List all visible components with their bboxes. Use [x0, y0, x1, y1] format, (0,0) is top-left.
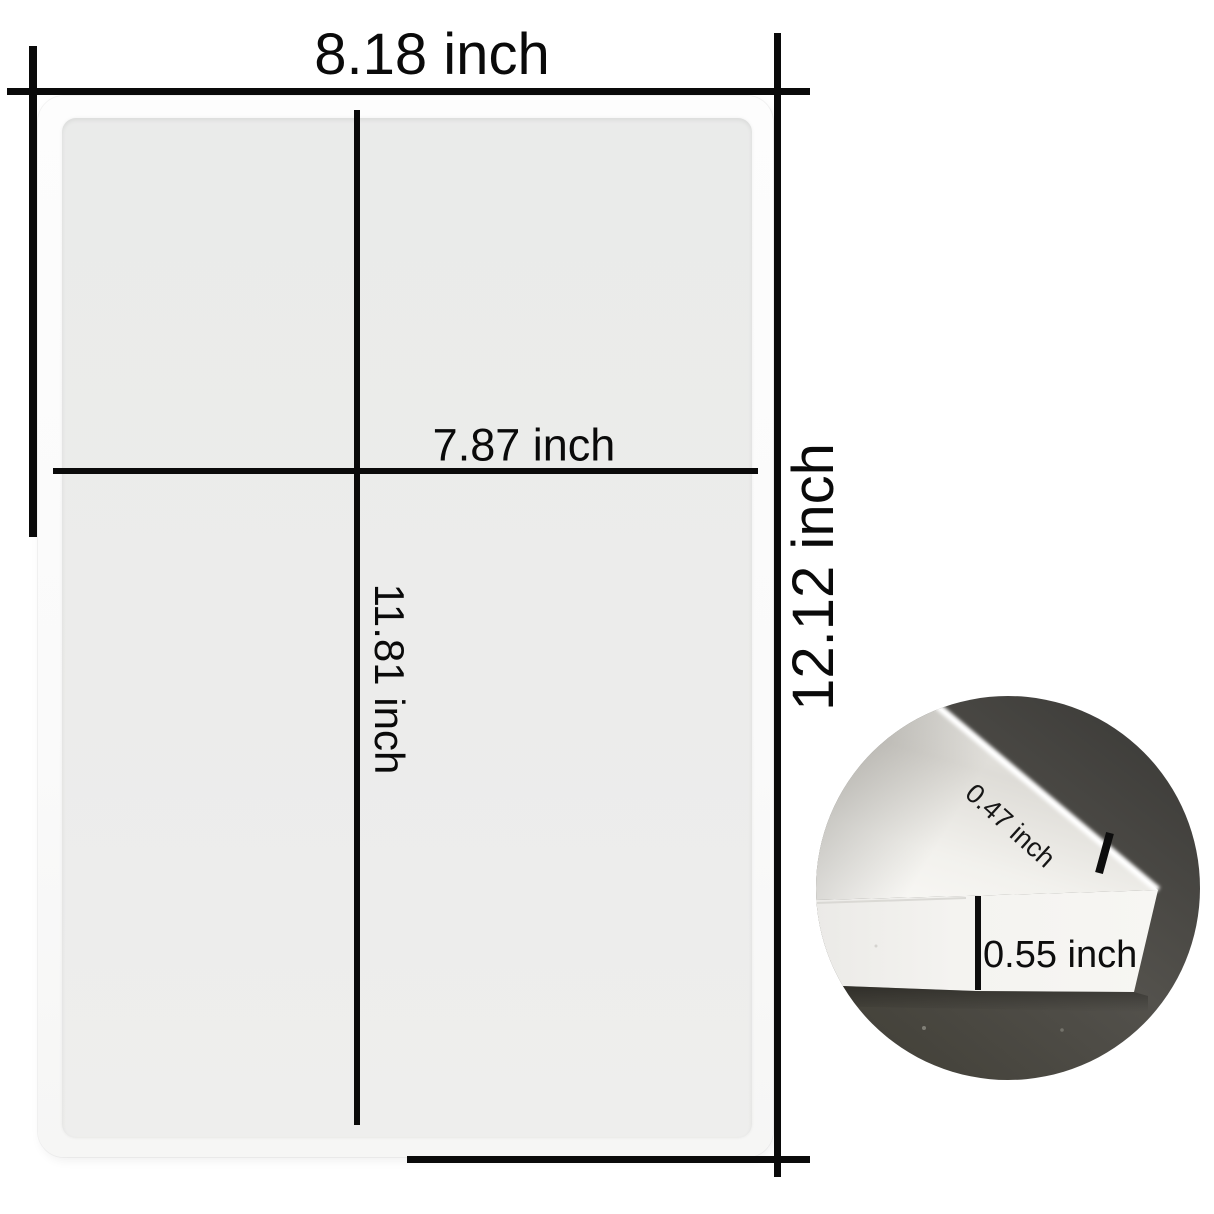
dim-tick-left [29, 46, 37, 537]
label-outer-height: 12.12 inch [785, 443, 843, 711]
dim-line-inner-width [53, 468, 758, 474]
inset-photo [816, 696, 1200, 1080]
label-inner-width: 7.87 inch [433, 423, 616, 468]
label-outer-width: 8.18 inch [314, 26, 549, 84]
dim-line-inner-height [354, 110, 360, 1125]
label-wall-height: 0.55 inch [983, 936, 1137, 974]
dim-line-bottom-extent [407, 1156, 810, 1163]
corner-detail-inset: 0.47 inch 0.55 inch [816, 696, 1200, 1080]
product-dimension-figure: 8.18 inch 7.87 inch 11.81 inch 12.12 inc… [0, 0, 1214, 1214]
label-inner-height: 11.81 inch [368, 584, 410, 775]
dim-line-outer-width [7, 88, 810, 95]
dim-line-outer-height [774, 33, 781, 1177]
